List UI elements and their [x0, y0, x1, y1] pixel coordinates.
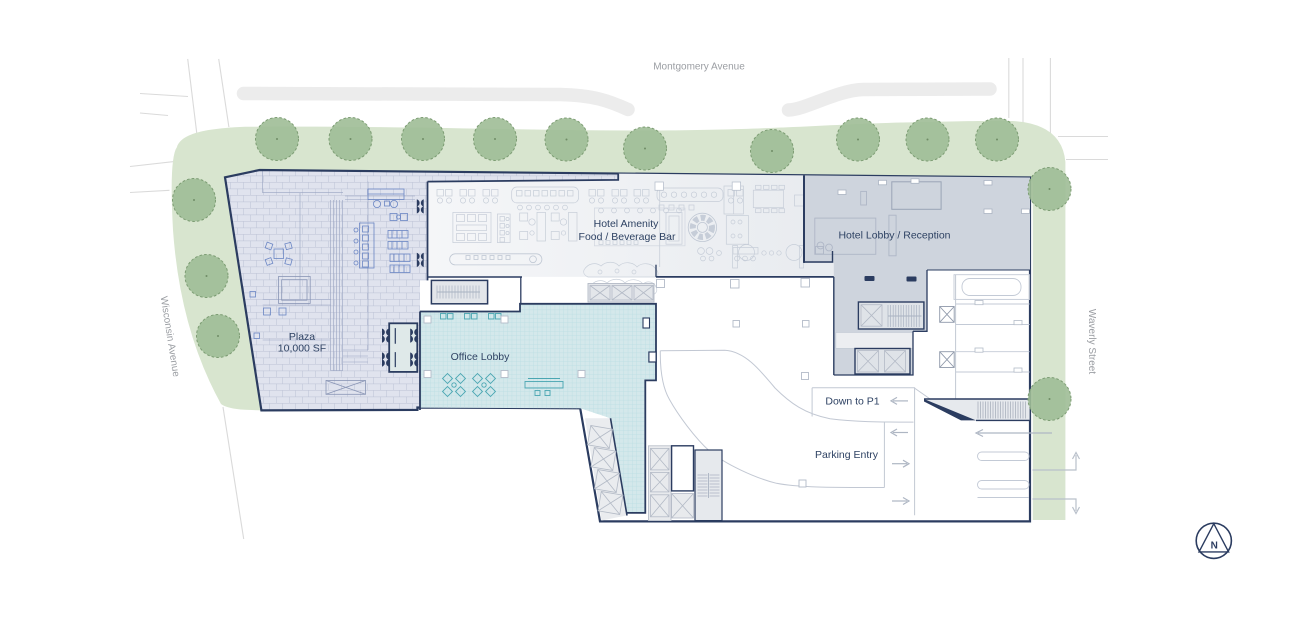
- svg-text:N: N: [1211, 541, 1218, 552]
- svg-text:10,000 SF: 10,000 SF: [278, 343, 326, 355]
- svg-text:Hotel Lobby / Reception: Hotel Lobby / Reception: [838, 230, 950, 242]
- svg-text:Plaza: Plaza: [289, 331, 315, 343]
- svg-text:Parking Entry: Parking Entry: [815, 449, 879, 461]
- svg-text:Montgomery Avenue: Montgomery Avenue: [653, 62, 745, 73]
- svg-text:Waverly Street: Waverly Street: [1086, 309, 1097, 374]
- svg-text:Food / Beverage Bar: Food / Beverage Bar: [579, 231, 676, 243]
- svg-text:Hotel Amenity: Hotel Amenity: [594, 218, 660, 230]
- svg-text:Down to P1: Down to P1: [825, 396, 879, 408]
- svg-text:Office Lobby: Office Lobby: [451, 351, 511, 363]
